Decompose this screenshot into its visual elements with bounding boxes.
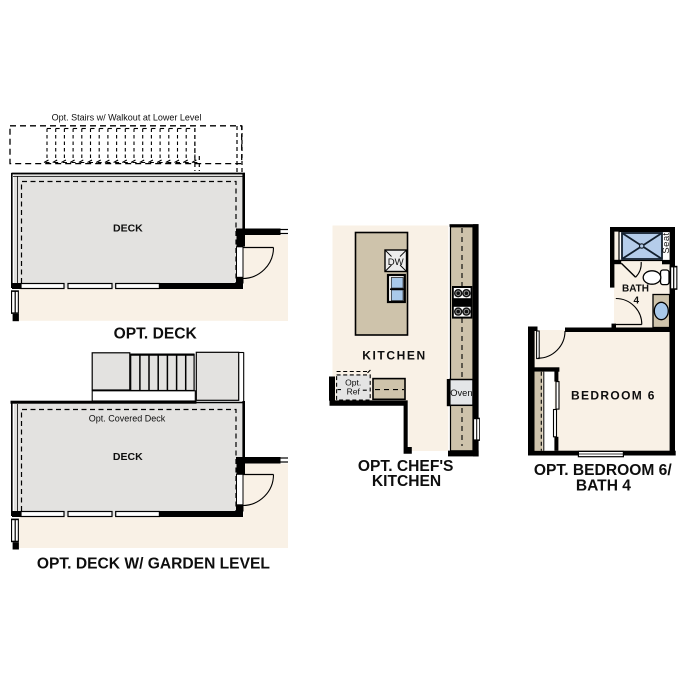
svg-text:OPT. DECK: OPT. DECK — [114, 326, 198, 343]
svg-text:OPT. BEDROOM 6/: OPT. BEDROOM 6/ — [534, 462, 672, 479]
svg-text:DW: DW — [388, 257, 405, 268]
svg-text:BATH: BATH — [622, 283, 649, 294]
svg-text:BATH 4: BATH 4 — [576, 478, 631, 495]
svg-text:DECK: DECK — [113, 451, 143, 463]
svg-text:4: 4 — [634, 295, 640, 306]
svg-text:OPT. DECK W/ GARDEN LEVEL: OPT. DECK W/ GARDEN LEVEL — [37, 556, 271, 573]
svg-text:KITCHEN: KITCHEN — [362, 349, 427, 363]
svg-text:Oven: Oven — [450, 388, 472, 398]
svg-text:Opt. Stairs w/ Walkout at Lowe: Opt. Stairs w/ Walkout at Lower Level — [52, 112, 202, 122]
svg-text:Ref: Ref — [347, 387, 361, 397]
svg-text:DECK: DECK — [113, 223, 143, 235]
svg-text:Opt. Covered Deck: Opt. Covered Deck — [89, 413, 166, 423]
svg-text:KITCHEN: KITCHEN — [372, 473, 441, 490]
svg-text:BEDROOM 6: BEDROOM 6 — [571, 389, 656, 403]
